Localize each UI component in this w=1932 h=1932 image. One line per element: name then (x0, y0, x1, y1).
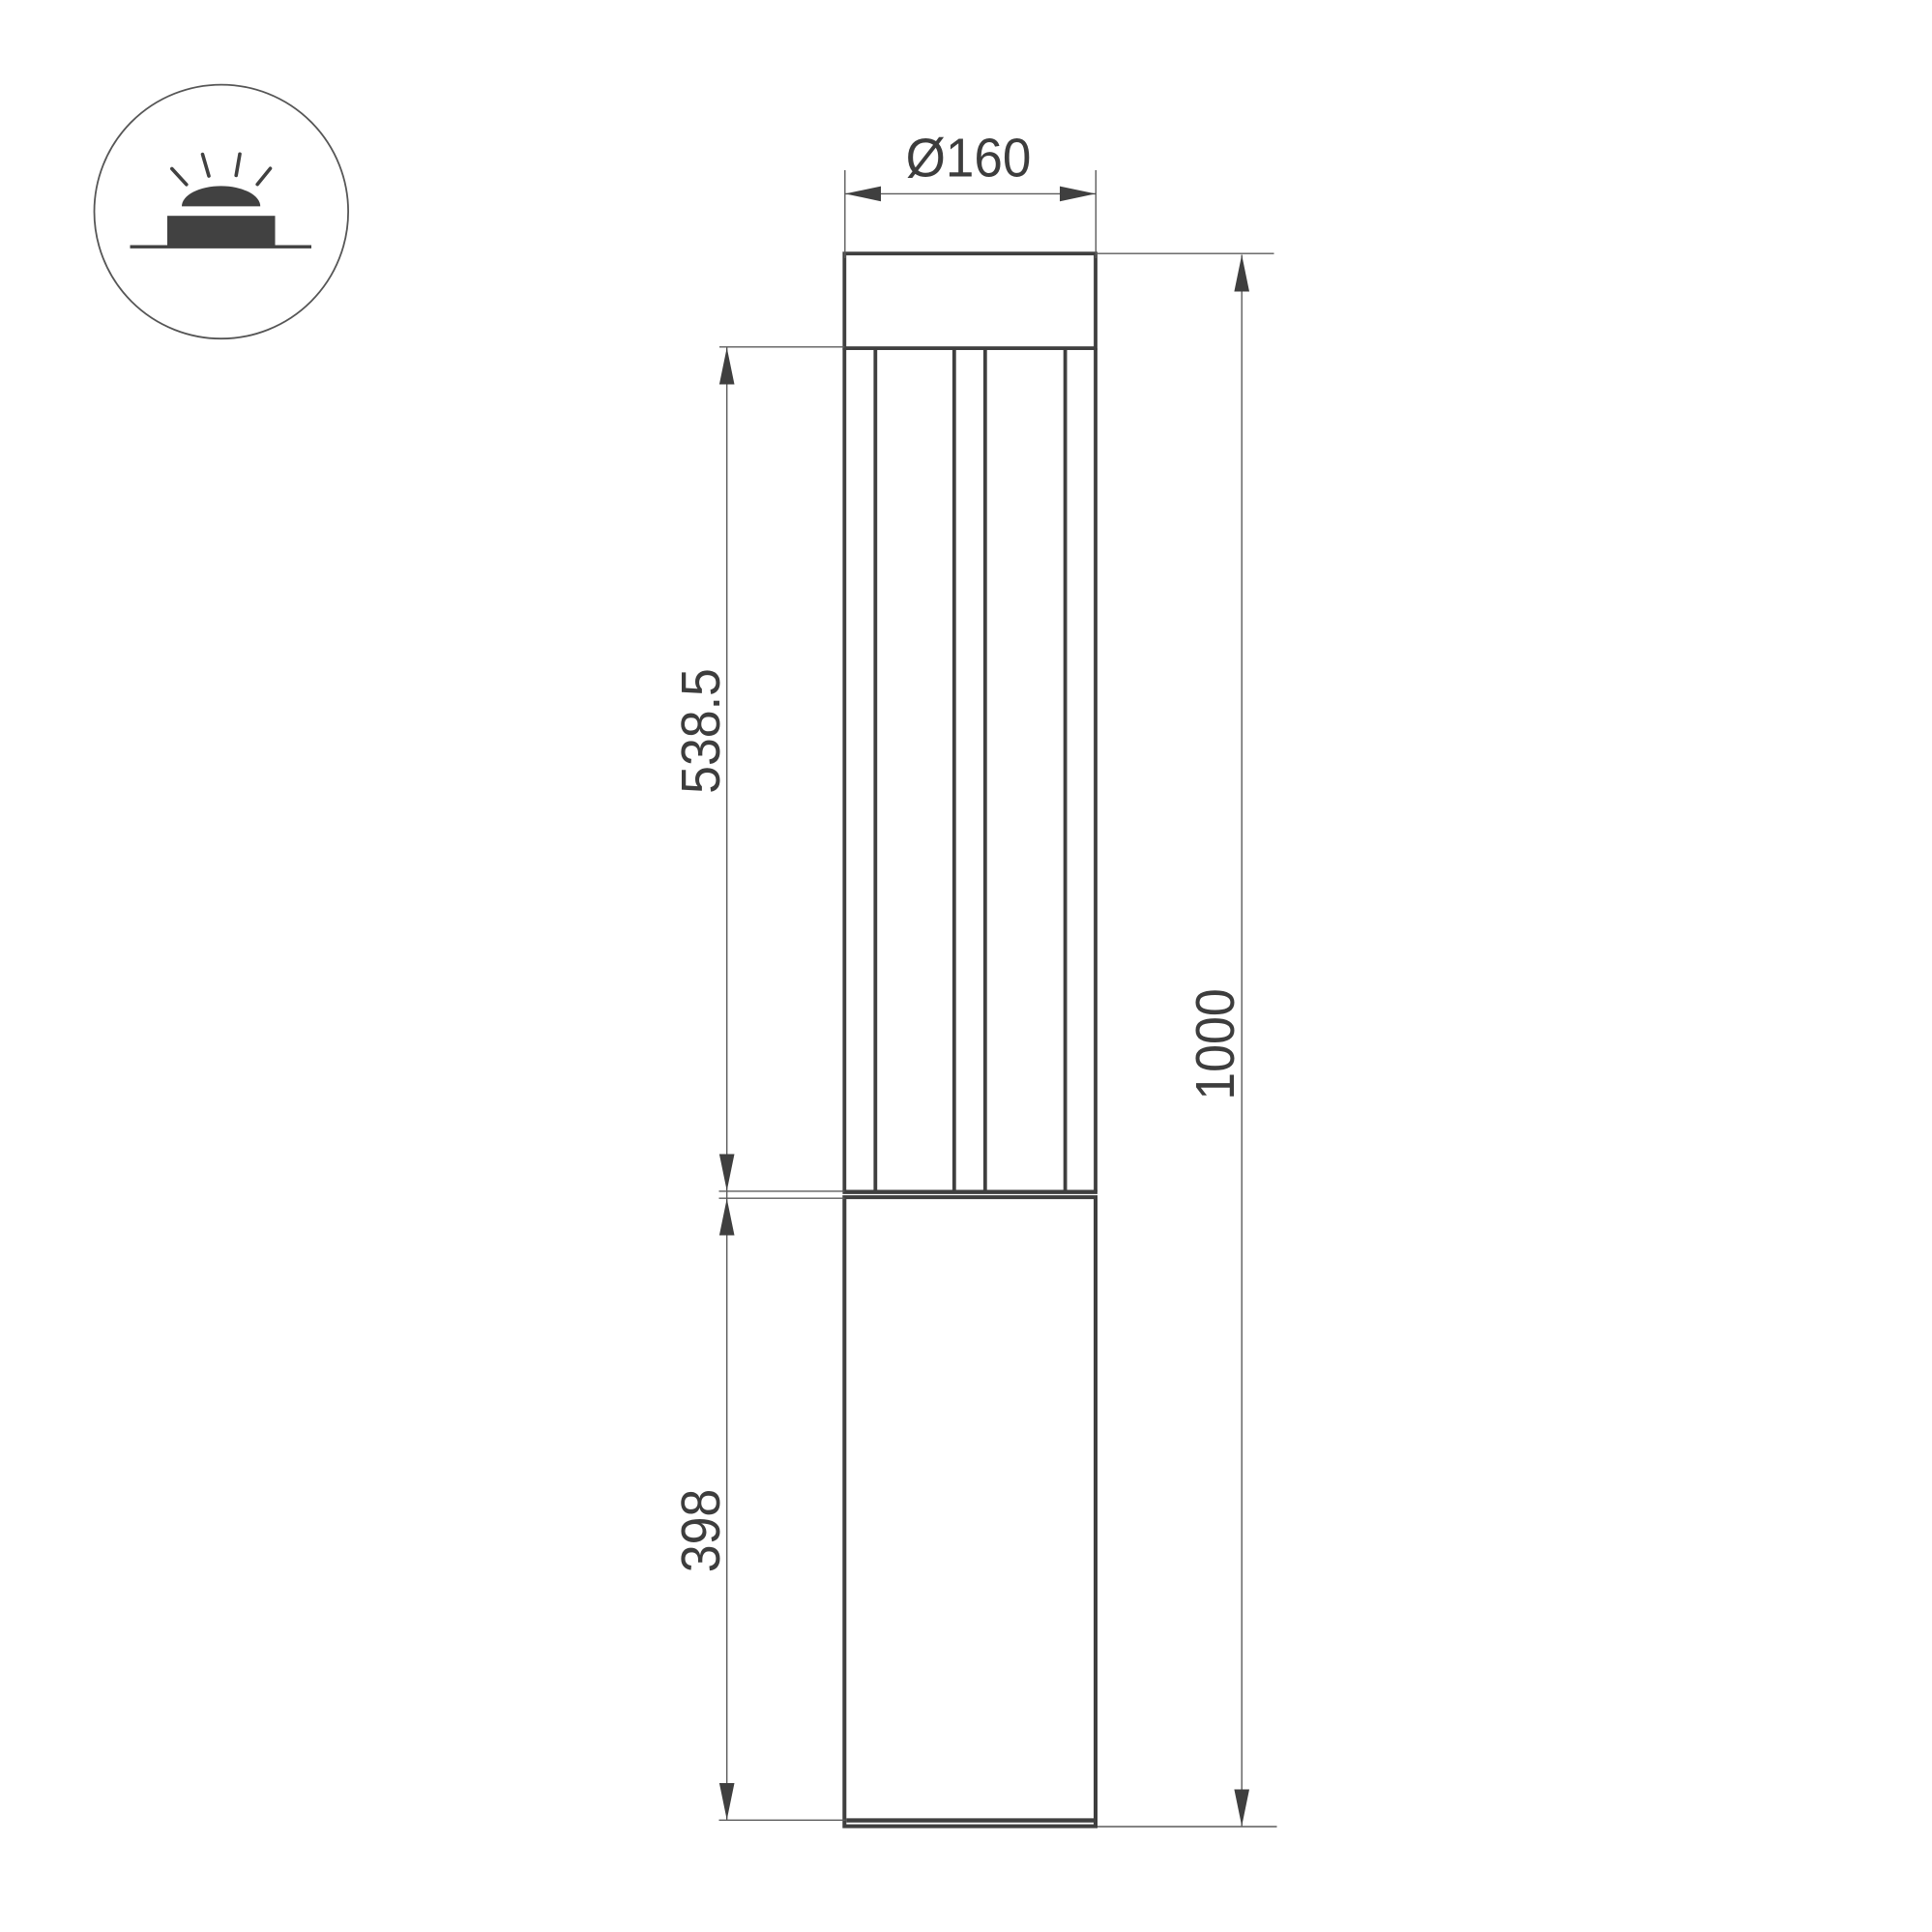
svg-text:538.5: 538.5 (670, 668, 732, 794)
svg-text:398: 398 (670, 1489, 732, 1573)
svg-text:Ø160: Ø160 (906, 127, 1032, 189)
svg-text:1000: 1000 (1185, 988, 1246, 1099)
